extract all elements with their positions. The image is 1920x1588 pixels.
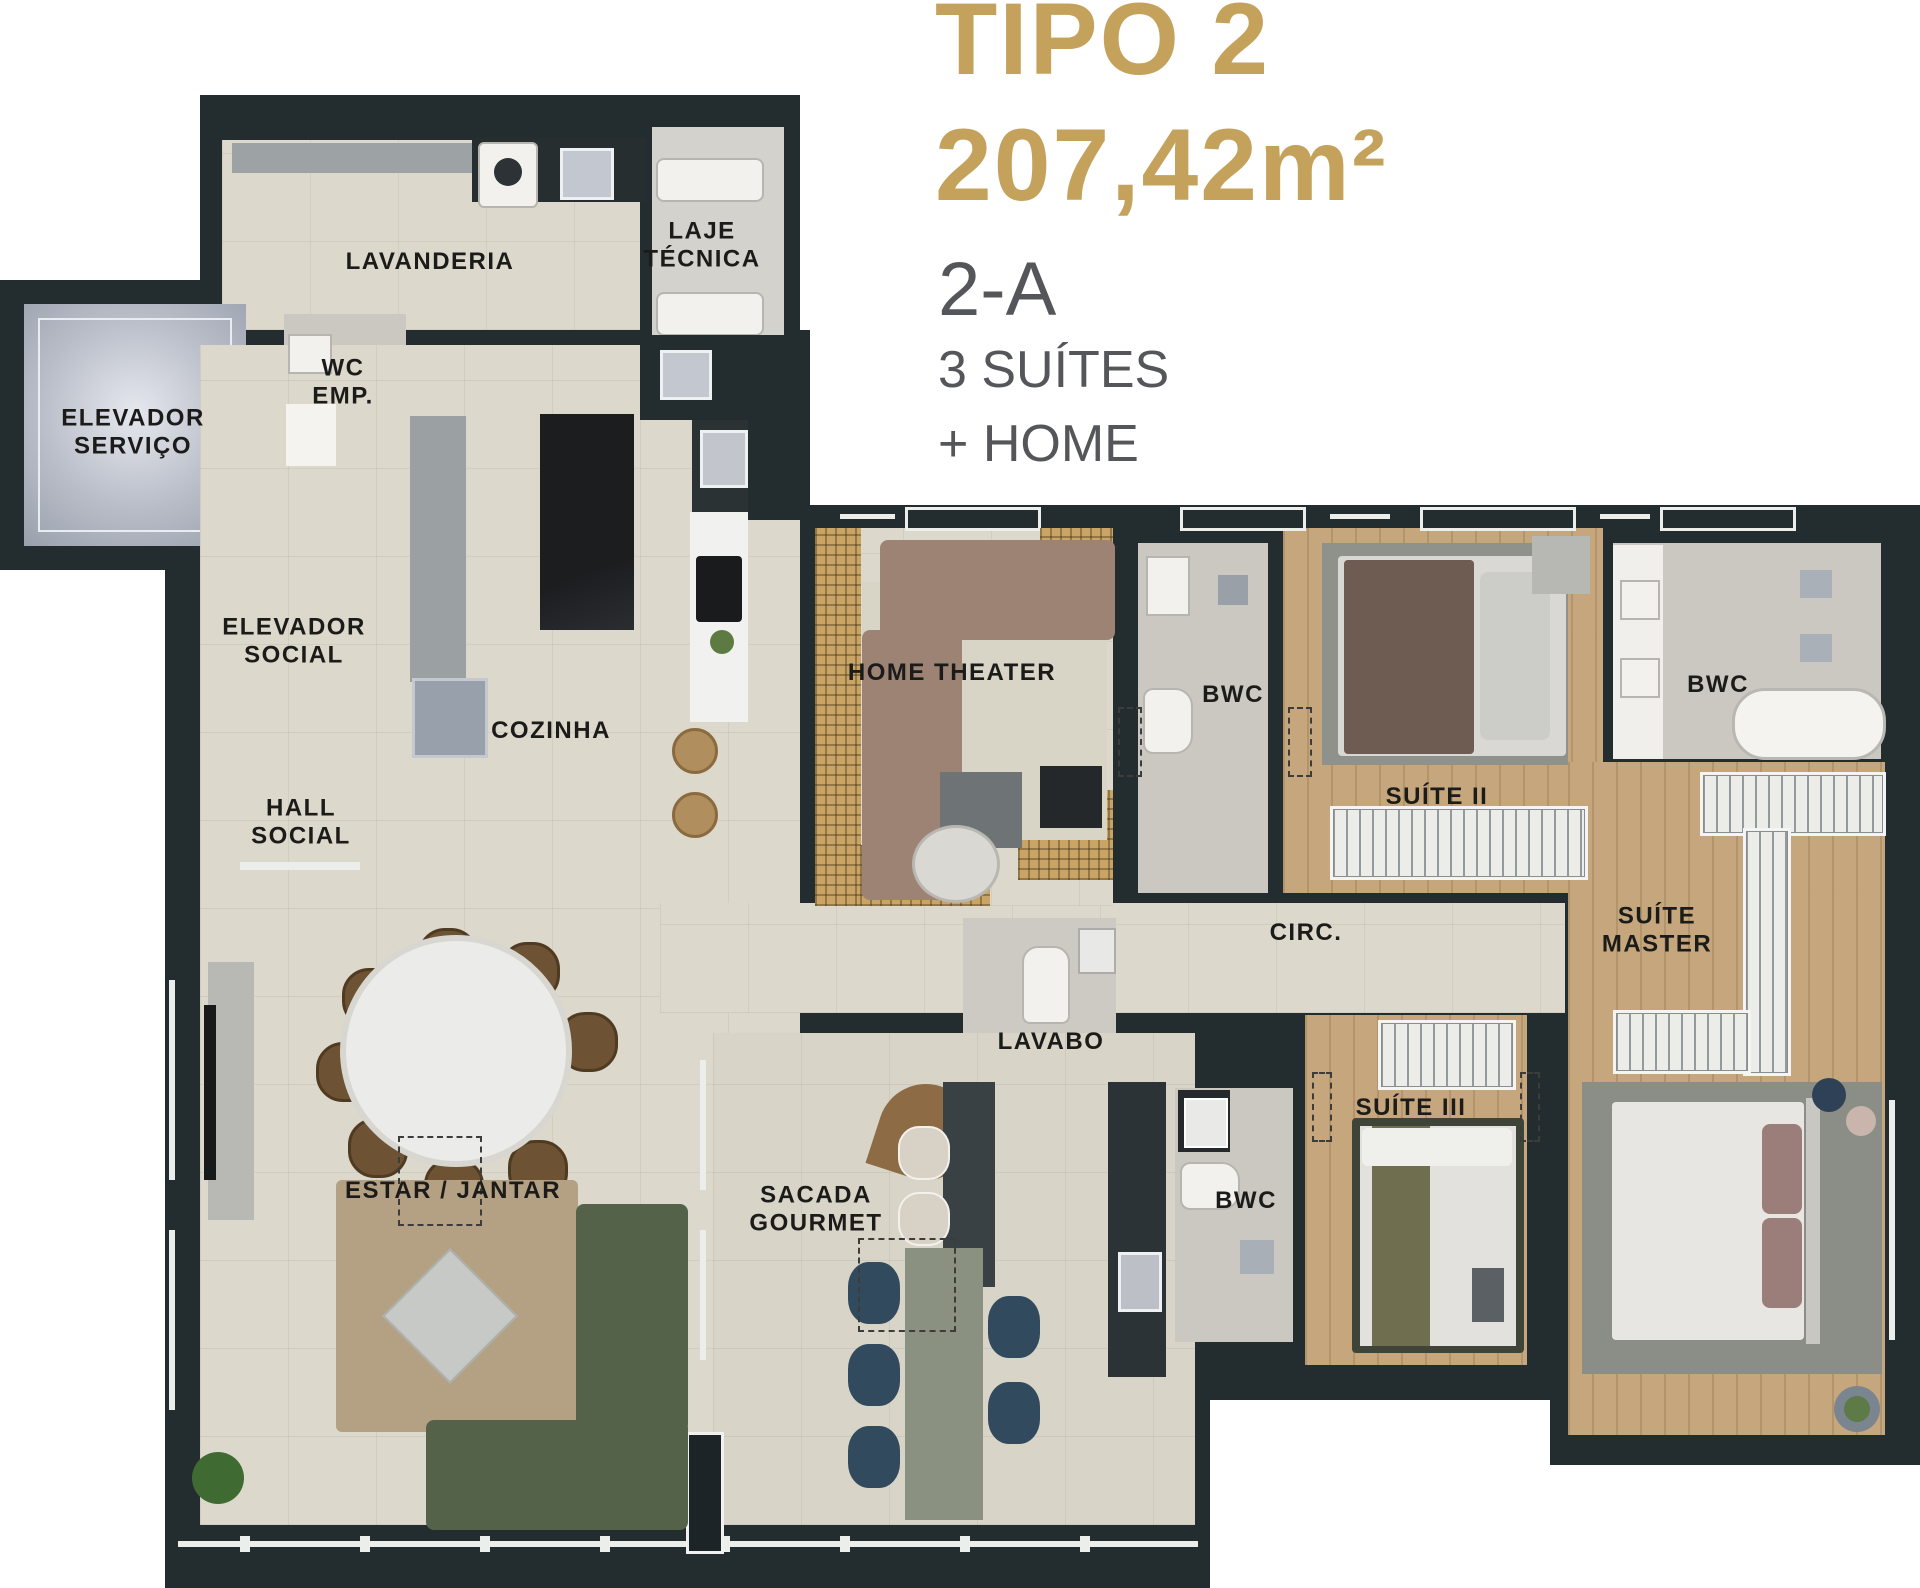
outdoor-chair [848, 1344, 900, 1406]
washer-drum [494, 158, 522, 186]
window-sill [840, 514, 895, 519]
room-label-lavabo: LAVABO [998, 1028, 1105, 1056]
plan-title: TIPO 2 [935, 0, 1270, 90]
ac-condenser-unit [656, 292, 764, 336]
window-sill [1600, 514, 1650, 519]
balcony-rail-post [360, 1536, 370, 1552]
suite2-wardrobe [1330, 806, 1588, 880]
lavabo-toilet [1022, 946, 1070, 1024]
bwcm-sink [1620, 580, 1660, 620]
suite3-dresser [1472, 1268, 1504, 1322]
island-stool [672, 792, 718, 838]
plan-feature-home: + HOME [938, 418, 1139, 470]
master-pillow [1762, 1124, 1802, 1214]
bwc2-sink [1146, 556, 1190, 616]
room-label-bwc-suite-2: BWC [1202, 681, 1264, 709]
bwcm-vanity [1613, 545, 1663, 759]
deck-strip [815, 528, 861, 906]
plan-feature-suites: 3 SUÍTES [938, 344, 1169, 396]
window-sill [1330, 514, 1390, 519]
bathtub [1732, 688, 1886, 760]
window-balcony-wall [700, 1230, 706, 1360]
island-stool [672, 728, 718, 774]
kitchen-wall-chase [748, 335, 810, 520]
master-side-tray [1846, 1106, 1876, 1136]
floorplan-canvas: LAVANDERIA LAJE TÉCNICA WC EMP. ELEVADOR… [0, 0, 1920, 1588]
window-balcony-wall [700, 1060, 706, 1190]
window-frame [1420, 507, 1576, 531]
outdoor-chair [848, 1426, 900, 1488]
room-label-lavanderia: LAVANDERIA [346, 248, 515, 276]
master-closet-rack [1613, 1010, 1751, 1074]
tv-panel [204, 1005, 216, 1180]
window-frame [905, 507, 1041, 531]
window-side-left [169, 1230, 175, 1410]
master-side-table [1812, 1078, 1846, 1112]
room-label-suite-2: SUÍTE II [1386, 783, 1489, 811]
room-label-cozinha: COZINHA [491, 717, 611, 745]
bwcm-shower-head [1800, 634, 1832, 662]
bwcm-shower-head [1800, 570, 1832, 598]
window-side-left [169, 980, 175, 1180]
media-cabinet [1040, 766, 1102, 828]
master-closet-rack [1700, 772, 1886, 836]
room-label-suite-3: SUÍTE III [1356, 1094, 1467, 1122]
outdoor-kitchen-counter [1108, 1082, 1166, 1377]
plant-leaves [1844, 1396, 1870, 1422]
wc-emp-shower [286, 404, 336, 466]
suite2-nightstand [1532, 536, 1590, 594]
door-swing-marker [858, 1238, 956, 1332]
kitchen-island [540, 414, 634, 630]
armchair [912, 825, 1000, 903]
home-theater-sofa [880, 540, 1115, 640]
cooktop [696, 556, 742, 622]
sofa-green-chaise [576, 1204, 688, 1432]
door-sill-hall [240, 862, 360, 870]
room-label-elevador-servico: ELEVADOR SERVIÇO [61, 405, 205, 462]
bwcm-sink [1620, 658, 1660, 698]
dining-table [340, 935, 572, 1167]
room-label-wc-emp: WC EMP. [312, 355, 374, 412]
kitchen-sink [700, 430, 748, 488]
service-door-panel [412, 678, 488, 758]
outdoor-sink [1118, 1252, 1162, 1312]
room-label-estar-jantar: ESTAR / JANTAR [345, 1177, 561, 1205]
suite3-closet-rack [1378, 1020, 1516, 1090]
room-label-bwc-master: BWC [1687, 671, 1749, 699]
door-swing-marker [1520, 1072, 1540, 1142]
lavabo-sink [1078, 928, 1116, 974]
master-plant [1834, 1386, 1880, 1432]
room-label-suite-master: SUÍTE MASTER [1602, 903, 1712, 960]
kitchen-gray-cabinet [410, 416, 466, 682]
balcony-rail-post [240, 1536, 250, 1552]
master-pillow [1762, 1218, 1802, 1308]
door-swing-marker [1312, 1072, 1332, 1142]
balcony-corner-pillar [686, 1432, 724, 1554]
door-swing-marker [1118, 707, 1142, 777]
balcony-rail-post [600, 1536, 610, 1552]
balcony-rail-post [1080, 1536, 1090, 1552]
window-frame [1180, 507, 1306, 531]
room-label-hall-social: HALL SOCIAL [251, 795, 351, 852]
suite2-blanket [1344, 560, 1474, 754]
balcony-rail-post [480, 1536, 490, 1552]
floor-plant [192, 1452, 244, 1504]
plan-unit: 2-A [938, 252, 1056, 328]
bwc3-shower-head [1240, 1240, 1274, 1274]
room-label-home-theater: HOME THEATER [848, 659, 1056, 687]
laundry-shelf [232, 143, 472, 173]
room-label-elevador-social: ELEVADOR SOCIAL [222, 614, 366, 671]
suite3-pillows [1362, 1128, 1512, 1166]
room-label-bwc-suite-3: BWC [1215, 1187, 1277, 1215]
room-label-circulacao: CIRC. [1270, 919, 1343, 947]
plan-area: 207,42m² [935, 114, 1388, 216]
laundry-sink [560, 148, 614, 200]
window-frame [1660, 507, 1796, 531]
sofa-green [426, 1420, 688, 1530]
bwc2-toilet [1143, 688, 1193, 754]
bwc2-shower-head [1218, 575, 1248, 605]
door-swing-marker [1288, 707, 1312, 777]
room-label-sacada-gourmet: SACADA GOURMET [749, 1182, 882, 1239]
window-side-right [1889, 1100, 1895, 1340]
bar-stool [898, 1126, 950, 1180]
outdoor-chair [988, 1382, 1040, 1444]
kitchen-top-sink [660, 350, 712, 400]
ac-condenser-unit [656, 158, 764, 202]
balcony-rail-post [840, 1536, 850, 1552]
bwc3-sink [1184, 1098, 1228, 1148]
balcony-rail-post [960, 1536, 970, 1552]
counter-plant [710, 630, 734, 654]
room-label-laje-tecnica: LAJE TÉCNICA [643, 218, 760, 275]
master-headboard [1806, 1098, 1820, 1344]
washing-machine [478, 142, 538, 208]
outdoor-chair [988, 1296, 1040, 1358]
suite2-pillows [1480, 572, 1550, 740]
